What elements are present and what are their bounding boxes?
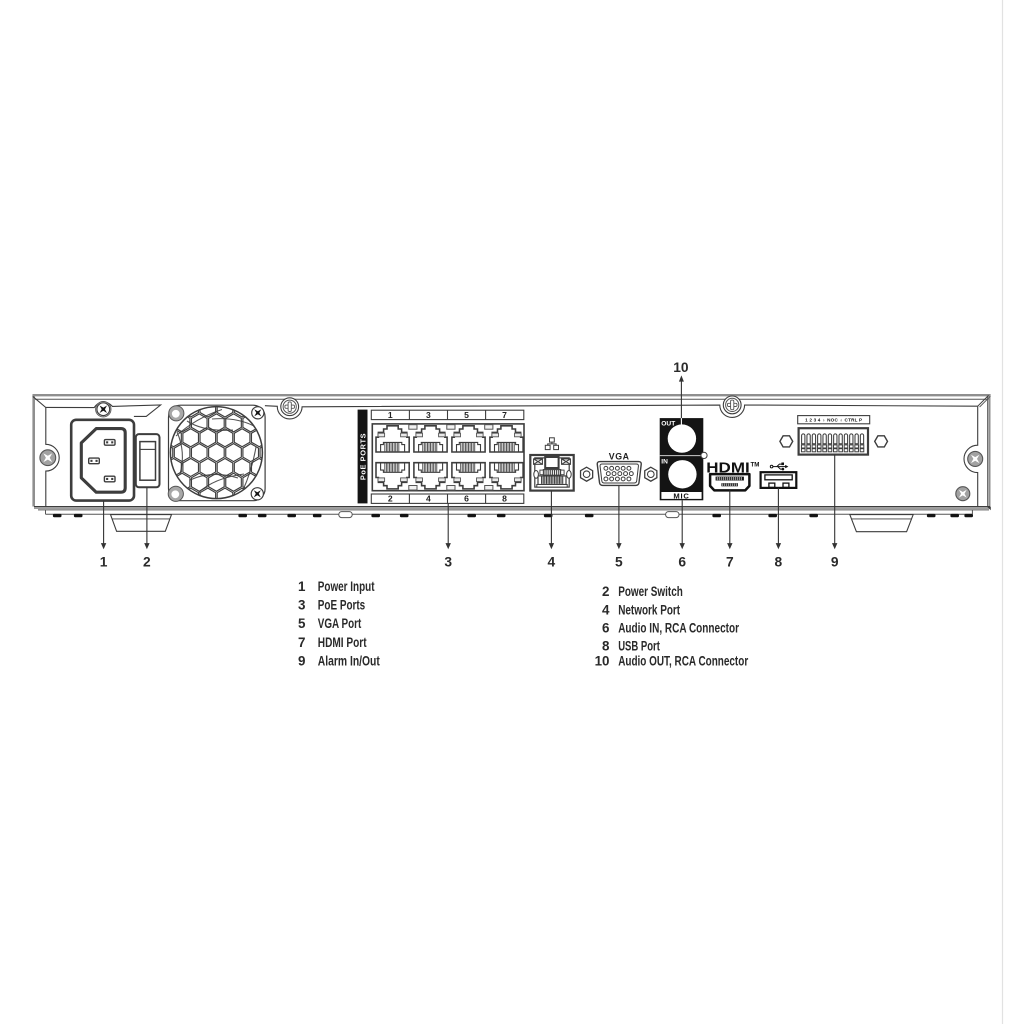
svg-text:PoE PORTS: PoE PORTS — [358, 433, 367, 480]
svg-text:4: 4 — [602, 603, 610, 618]
svg-text:3: 3 — [444, 555, 452, 570]
svg-text:1: 1 — [388, 410, 393, 420]
svg-text:9: 9 — [831, 555, 839, 570]
svg-text:Power Input: Power Input — [318, 579, 375, 594]
svg-text:USB Port: USB Port — [618, 638, 660, 653]
svg-text:1: 1 — [298, 579, 306, 594]
svg-text:5: 5 — [464, 410, 469, 420]
svg-text:VGA: VGA — [609, 452, 630, 462]
svg-text:7: 7 — [502, 410, 507, 420]
svg-text:Audio IN, RCA Connector: Audio IN, RCA Connector — [618, 620, 739, 635]
svg-text:1: 1 — [100, 555, 108, 570]
svg-text:Power Switch: Power Switch — [618, 584, 683, 599]
svg-text:7: 7 — [298, 635, 305, 650]
svg-text:Network Port: Network Port — [618, 603, 680, 618]
svg-text:VGA Port: VGA Port — [318, 616, 362, 631]
svg-text:3: 3 — [426, 410, 431, 420]
svg-text:10: 10 — [595, 653, 610, 668]
svg-text:4: 4 — [426, 494, 431, 504]
svg-text:3: 3 — [298, 598, 305, 613]
svg-text:8: 8 — [502, 494, 507, 504]
svg-text:HDMI Port: HDMI Port — [318, 635, 367, 650]
svg-text:6: 6 — [678, 555, 686, 570]
svg-text:IN: IN — [661, 459, 668, 466]
svg-text:2: 2 — [602, 584, 609, 599]
svg-text:Alarm In/Out: Alarm In/Out — [318, 654, 380, 669]
svg-text:PoE Ports: PoE Ports — [318, 598, 365, 613]
svg-text:2: 2 — [143, 555, 151, 570]
svg-text:1 2 3 4 ♁ NOC ♁ CTRL P: 1 2 3 4 ♁ NOC ♁ CTRL P — [805, 418, 862, 423]
svg-text:6: 6 — [602, 620, 609, 635]
svg-text:8: 8 — [602, 638, 610, 653]
svg-text:TM: TM — [751, 462, 760, 469]
svg-text:2: 2 — [388, 494, 393, 504]
svg-text:Audio OUT, RCA Connector: Audio OUT, RCA Connector — [618, 653, 749, 668]
svg-text:MIC: MIC — [673, 491, 689, 500]
svg-text:9: 9 — [298, 654, 305, 669]
svg-text:6: 6 — [464, 494, 469, 504]
svg-text:5: 5 — [298, 616, 306, 631]
svg-text:8: 8 — [775, 555, 783, 570]
svg-text:OUT: OUT — [661, 421, 675, 428]
svg-text:10: 10 — [673, 360, 689, 375]
svg-text:4: 4 — [548, 555, 556, 570]
svg-text:5: 5 — [615, 555, 623, 570]
svg-text:7: 7 — [726, 555, 734, 570]
